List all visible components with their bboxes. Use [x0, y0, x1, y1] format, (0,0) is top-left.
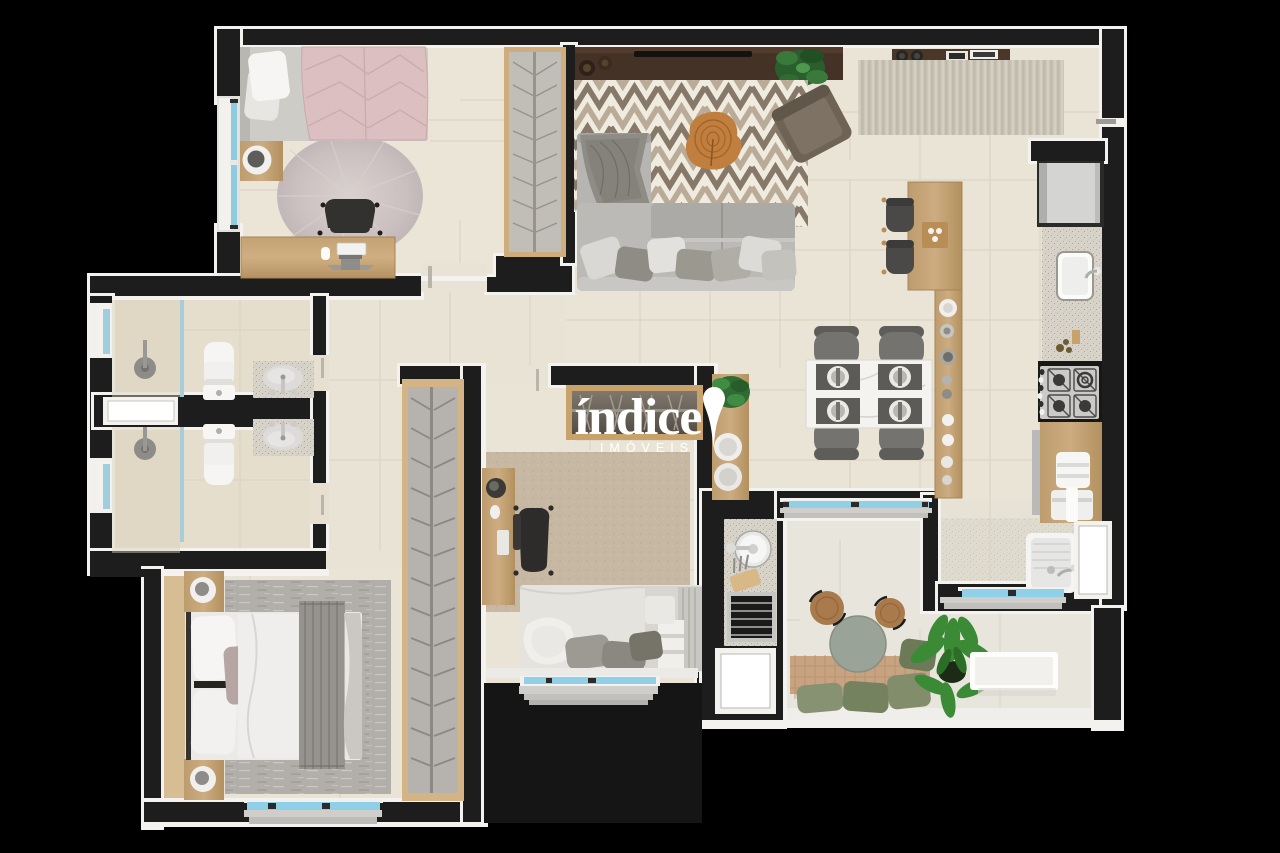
- svg-text:IMÓVEIS: IMÓVEIS: [600, 440, 694, 455]
- svg-text:índice: índice: [575, 389, 702, 446]
